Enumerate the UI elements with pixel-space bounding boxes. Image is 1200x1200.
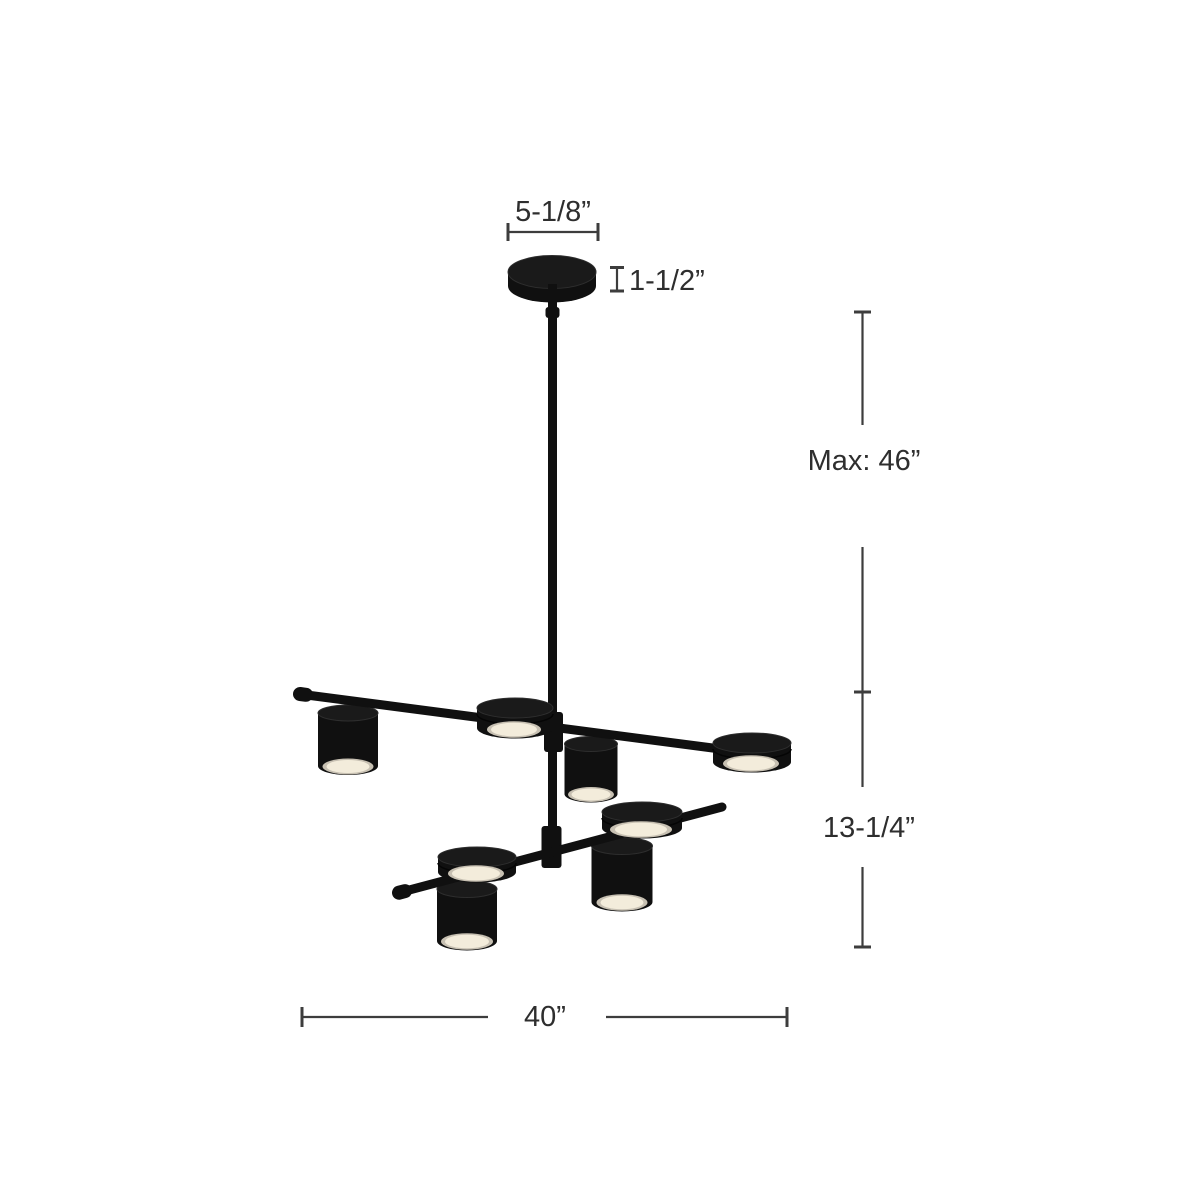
cylinder-light-lower-left bbox=[437, 881, 497, 951]
puck-light-far-right bbox=[713, 733, 791, 773]
fixture-width-label: 40” bbox=[524, 1001, 566, 1033]
cylinder-light-upper-right bbox=[565, 737, 618, 803]
canopy-height-label: 1-1/2” bbox=[629, 265, 705, 297]
rod-stem bbox=[548, 284, 557, 856]
dimension-fixture-height: 13-1/4” bbox=[823, 692, 915, 947]
dimension-canopy-height: 1-1/2” bbox=[610, 265, 705, 297]
dimension-max-height: Max: 46” bbox=[808, 312, 921, 692]
canopy-width-label: 5-1/8” bbox=[515, 196, 591, 228]
dimension-fixture-width: 40” bbox=[302, 1001, 787, 1033]
puck-light-lower-right bbox=[602, 802, 682, 839]
lower-arm-end-cap bbox=[399, 891, 405, 893]
cylinder-light-upper-left bbox=[318, 705, 378, 775]
fixture-height-label: 13-1/4” bbox=[823, 812, 915, 844]
chandelier-dimension-drawing: 5-1/8” 1-1/2” Max: 46” 13-1/4” bbox=[0, 0, 1200, 1200]
dimension-canopy-width: 5-1/8” bbox=[508, 196, 598, 241]
down-rod bbox=[542, 284, 564, 868]
puck-light-upper-center bbox=[477, 698, 553, 739]
rod-ferrule bbox=[546, 307, 560, 318]
upper-arm-end-cap bbox=[300, 694, 306, 695]
puck-light-lower-left bbox=[438, 847, 516, 883]
max-height-label: Max: 46” bbox=[808, 445, 921, 477]
cylinder-light-lower-right bbox=[592, 838, 653, 912]
dimension-diagram: 5-1/8” 1-1/2” Max: 46” 13-1/4” bbox=[0, 0, 1200, 1200]
canopy-top bbox=[508, 256, 596, 289]
